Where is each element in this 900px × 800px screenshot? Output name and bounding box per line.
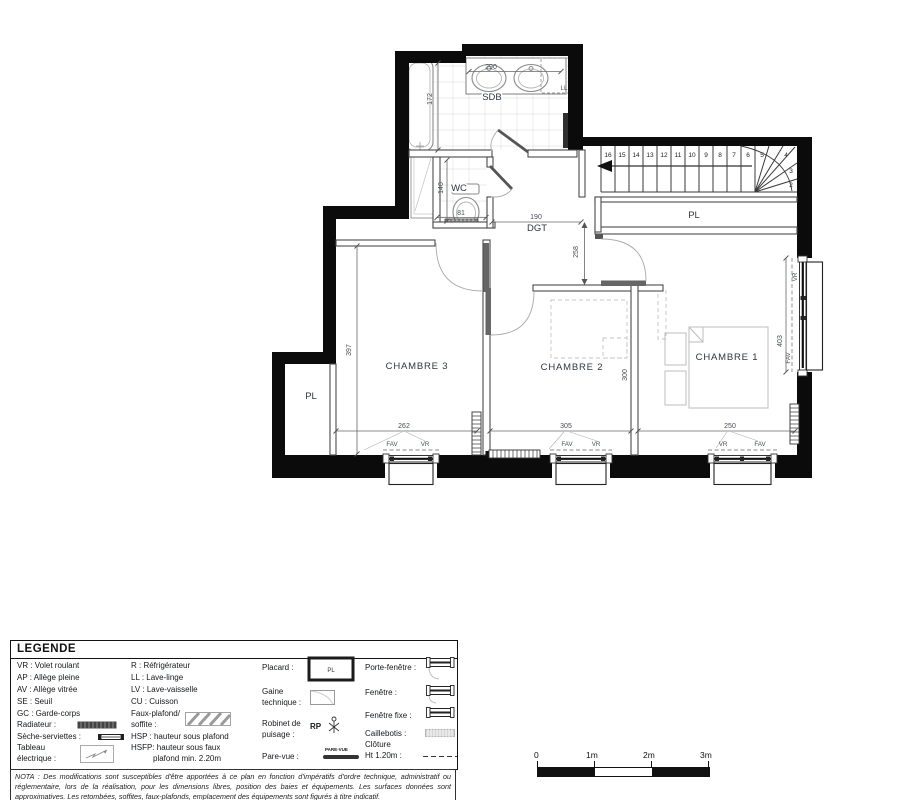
nightstand [665, 371, 686, 405]
window-label: FAV [754, 441, 766, 448]
legend-parevue: Pare-vue : [262, 752, 299, 761]
window-label: VR [792, 272, 799, 281]
legend-r: R : Réfrigérateur [131, 661, 190, 670]
furniture [551, 291, 768, 408]
legend-tableau-1: Tableau [17, 743, 45, 752]
step-number: 6 [746, 152, 750, 159]
room-label-dgt: DGT [527, 223, 547, 234]
legend-robinet-2: puisage : [262, 730, 294, 739]
legend-faux-2: soffite : [131, 720, 157, 729]
stair-direction-arrow [597, 160, 612, 172]
step-number: 16 [604, 152, 612, 159]
scale-tick-label: 2m [643, 750, 655, 760]
pare-vue-icon [323, 755, 359, 759]
legend-gc: GC : Garde-corps [17, 709, 80, 718]
step-number: 13 [646, 152, 654, 159]
room-label-chambre1: CHAMBRE 1 [696, 352, 759, 363]
legend-box: LEGENDE VR : Volet roulant AP : Allège p… [10, 640, 458, 770]
floor-plan-sheet: 16 15 14 13 12 11 10 9 8 7 6 5 4 3 2 [0, 0, 900, 800]
window-label: VR [421, 441, 430, 448]
room-label-pl-stairs: PL [688, 210, 700, 221]
scale-tick-label: 1m [586, 750, 598, 760]
scale-segment [652, 768, 709, 776]
legend-rp: RP [310, 722, 321, 731]
step-number: 15 [618, 152, 626, 159]
step-number: 11 [675, 152, 682, 159]
legend-hsfp-1: HSFP: hauteur sous faux [131, 743, 220, 752]
dashed-duct [658, 291, 666, 339]
legend-vr: VR : Volet roulant [17, 661, 79, 670]
window-label: VR [592, 441, 601, 448]
legend-av: AV : Allège vitrée [17, 685, 77, 694]
technical-duct-icon [307, 687, 337, 707]
caillebotis-icon [425, 729, 455, 737]
scale-segment [595, 768, 652, 776]
nota-box: NOTA : Des modifications sont susceptibl… [10, 769, 456, 800]
legend-placard: Placard : [262, 663, 294, 672]
dim-bathtub: 172 [427, 93, 434, 105]
step-number: 9 [704, 152, 708, 159]
cloture-icon [423, 754, 457, 759]
dim-vanity: 290 [485, 64, 497, 71]
door-sdb [491, 130, 528, 152]
legend-hsfp-2: plafond min. 2.20m [153, 754, 221, 763]
window-chambre2: FAV VR [549, 432, 612, 485]
legend-title: LEGENDE [17, 643, 76, 655]
fenetre-icon [425, 685, 455, 705]
legend-fenetre: Fenêtre : [365, 688, 397, 697]
dim-window1: 262 [398, 423, 410, 430]
scale-segment [538, 768, 595, 776]
porte-fenetre-icon [425, 657, 455, 681]
legend-gaine-2: technique : [262, 698, 301, 707]
room-label-sdb: SDB [482, 92, 502, 103]
legend-cu: CU : Cuisson [131, 697, 178, 706]
legend-fenetre-fixe: Fenêtre fixe : [365, 711, 412, 720]
radiator-chambre1 [790, 404, 799, 444]
step-number: 7 [732, 152, 736, 159]
pare-vue-icon-label: PARE-VUE [325, 747, 348, 752]
legend-lv: LV : Lave-vaisselle [131, 685, 198, 694]
scale-tick-label: 3m [700, 750, 712, 760]
placard-icon: PL [307, 656, 355, 682]
legend-porte-fenetre: Porte-fenêtre : [365, 663, 416, 672]
towel-dryer-icon [98, 733, 124, 741]
legend-ap: AP : Allège pleine [17, 673, 80, 682]
dim-window3: 250 [724, 423, 736, 430]
radiator-chambre3 [472, 412, 481, 455]
label-ll: LL [561, 85, 568, 92]
legend-tableau-2: électrique : [17, 754, 56, 763]
legend-gaine-1: Gaine [262, 687, 283, 696]
legend-se: SE : Seuil [17, 697, 52, 706]
window-label: FAV [561, 441, 573, 448]
window-label: FAV [386, 441, 398, 448]
step-number: 3 [789, 168, 793, 175]
step-number: 4 [784, 152, 788, 159]
tap-icon [328, 716, 340, 734]
radiator-chambre2 [486, 450, 541, 458]
dim-window2: 305 [560, 423, 572, 430]
window-chambre1: VR FAV [708, 432, 777, 485]
dashed-furniture [551, 300, 627, 358]
door-chambre2 [486, 288, 535, 335]
exterior-walls [272, 44, 812, 478]
legend-robinet-1: Robinet de [262, 719, 301, 728]
dim-chambre2: 300 [622, 369, 629, 381]
electrical-panel-icon [80, 745, 114, 763]
step-number: 8 [718, 152, 722, 159]
door-chambre1 [601, 239, 646, 286]
legend-hsp: HSP : hauteur sous plafond [131, 732, 229, 741]
dashed-furniture [603, 338, 627, 358]
dim-dgt-width: 190 [530, 214, 542, 221]
legend-separator [11, 658, 457, 659]
fenetre-fixe-icon [425, 707, 455, 719]
room-label-chambre2: CHAMBRE 2 [541, 362, 604, 373]
dim-dgt-depth: 258 [573, 246, 580, 258]
legend-cloture-2: Ht 1.20m : [365, 751, 402, 760]
glazed-panel [411, 152, 436, 218]
dim-wc-width: 81 [457, 210, 465, 217]
room-label-chambre3: CHAMBRE 3 [386, 361, 449, 372]
dim-chambre3: 397 [346, 344, 353, 356]
legend-cloture-1: Clôture [365, 740, 391, 749]
step-number: 10 [688, 152, 696, 159]
window-right: VR FAV [785, 256, 823, 376]
scale-bar: 0 1m 2m 3m [535, 750, 715, 780]
nota-text: NOTA : Des modifications sont susceptibl… [15, 772, 451, 800]
bathroom-fixtures [406, 58, 573, 218]
dim-window-right: 403 [777, 335, 784, 347]
svg-text:PL: PL [327, 668, 335, 674]
step-number: 2 [789, 182, 793, 189]
room-label-pl-left: PL [305, 391, 317, 402]
stairs: 16 15 14 13 12 11 10 9 8 7 6 5 4 3 2 [597, 146, 797, 192]
legend-seche: Sèche-serviettes : [17, 732, 81, 741]
door-wc [490, 166, 512, 197]
radiator-icon [77, 721, 117, 729]
room-label-wc: WC [451, 183, 467, 194]
false-ceiling-icon [185, 712, 231, 726]
window-label: VR [719, 441, 728, 448]
step-number: 12 [660, 152, 668, 159]
legend-ll: LL : Lave-linge [131, 673, 183, 682]
step-number: 5 [760, 152, 764, 159]
scale-bar-track [537, 767, 710, 777]
scale-tick-label: 0 [534, 750, 539, 760]
step-number: 14 [632, 152, 640, 159]
door-chambre3 [436, 243, 489, 292]
floor-plan-drawing: 16 15 14 13 12 11 10 9 8 7 6 5 4 3 2 [0, 0, 900, 560]
legend-faux-1: Faux-plafond/ [131, 709, 180, 718]
legend-caillebotis: Caillebotis : [365, 729, 406, 738]
legend-radiateur: Radiateur : [17, 720, 56, 729]
dim-wc-depth: 140 [438, 182, 445, 194]
nightstand [665, 333, 686, 365]
